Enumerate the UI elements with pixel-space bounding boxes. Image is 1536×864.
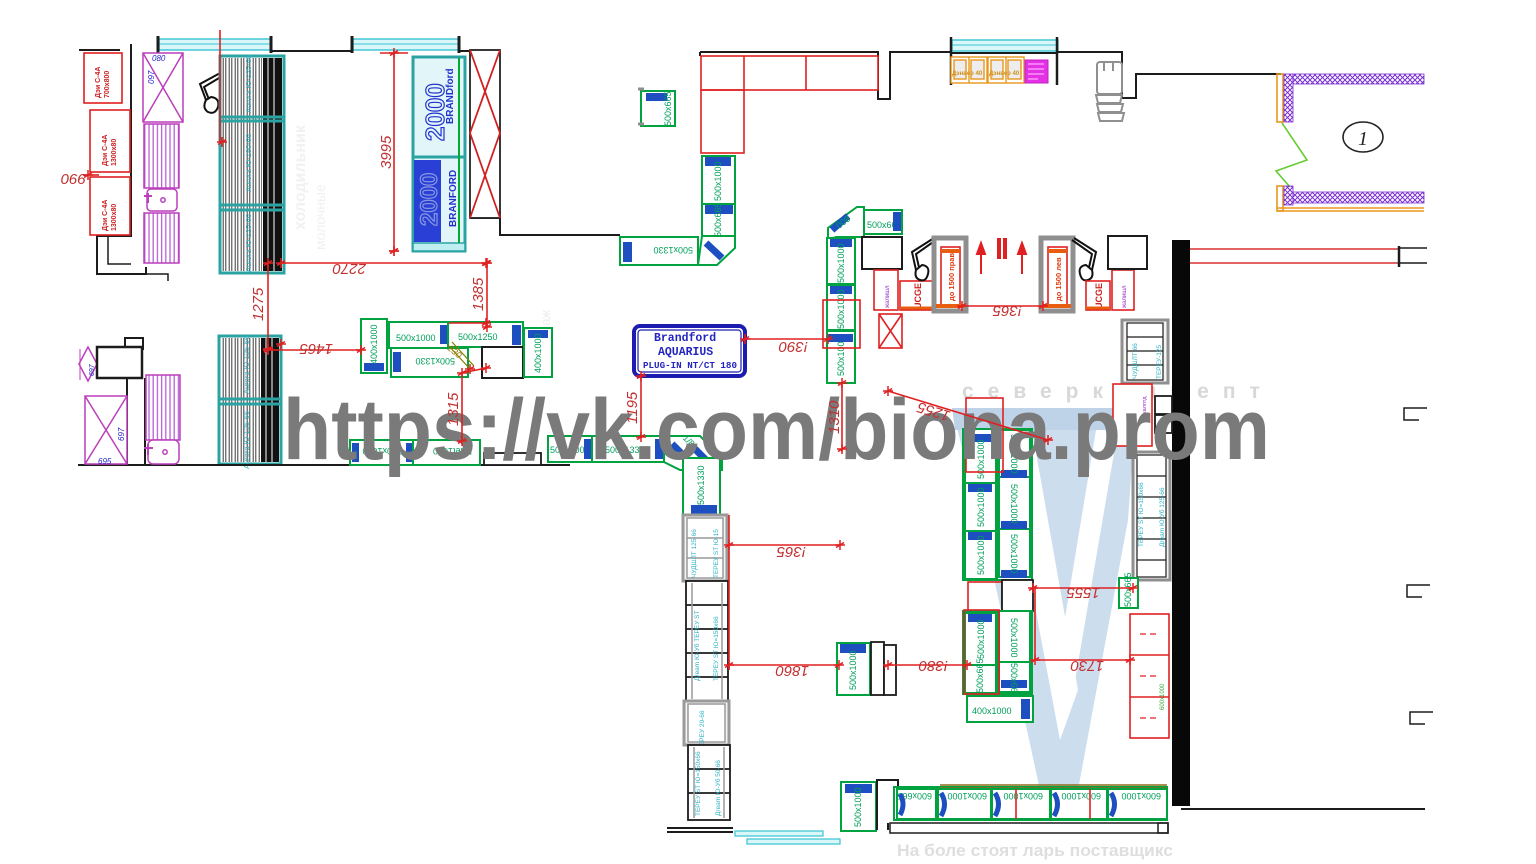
svg-text:600x1000: 600x1000 (1121, 791, 1161, 801)
svg-text:500x1330: 500x1330 (653, 245, 693, 255)
svg-text:Дэи С-4А: Дэи С-4А (95, 67, 102, 98)
svg-text:Дэнвер 40: Дэнвер 40 (952, 71, 983, 77)
svg-text:500x1000: 500x1000 (976, 619, 986, 659)
svg-text:ТЕРЕУ ST Ю-15: ТЕРЕУ ST Ю-15 (713, 529, 720, 578)
svg-text:3995: 3995 (378, 135, 395, 169)
svg-text:600x1000: 600x1000 (1160, 683, 1166, 710)
svg-text:Aurora Ю-125-66: Aurora Ю-125-66 (242, 336, 251, 394)
svg-text:500x1000: 500x1000 (1009, 618, 1019, 658)
svg-text:AQUARIUS: AQUARIUS (658, 346, 713, 359)
svg-text:холодильник: холодильник (292, 124, 309, 230)
svg-text:до 1500 прав: до 1500 прав (947, 253, 956, 301)
svg-text:500x1000: 500x1000 (853, 787, 863, 827)
svg-text:500x1000: 500x1000 (836, 289, 846, 329)
svg-text:080: 080 (152, 54, 166, 63)
svg-text:500x665: 500x665 (1009, 663, 1019, 698)
svg-text:На боле стоят ларь поставщикс: На боле стоят ларь поставщикс (897, 841, 1173, 860)
svg-text:500x1000: 500x1000 (836, 336, 846, 376)
svg-text:500x1000: 500x1000 (836, 243, 846, 283)
svg-text:!390: !390 (778, 338, 808, 355)
svg-text:ТЕРЕУ ST Ю=150x66: ТЕРЕУ ST Ю=150x66 (713, 616, 720, 681)
svg-text:500x1000: 500x1000 (1009, 484, 1019, 524)
svg-text:1385: 1385 (470, 277, 487, 311)
svg-text:Aurora Ю-125-66: Aurora Ю-125-66 (242, 411, 251, 469)
svg-text:500x665: 500x665 (975, 658, 985, 693)
svg-text:400x1000: 400x1000 (972, 706, 1012, 716)
svg-text:жалишл: жалишл (885, 285, 891, 308)
svg-text:Дream Ю-Уб 50-66: Дream Ю-Уб 50-66 (714, 760, 722, 816)
svg-text:1860: 1860 (775, 662, 809, 679)
svg-text:ТЕРЕУ 20-66: ТЕРЕУ 20-66 (699, 710, 706, 750)
svg-text:1195: 1195 (624, 391, 641, 424)
svg-text:600x1000: 600x1000 (947, 791, 987, 801)
svg-text:1300х80: 1300х80 (111, 139, 118, 166)
svg-text:600x1000: 600x1000 (1061, 791, 1101, 801)
svg-text:UCGE: UCGE (1094, 283, 1104, 309)
svg-text:Дэи С-4А: Дэи С-4А (102, 200, 109, 231)
svg-text:1275: 1275 (250, 287, 267, 321)
svg-text:молочные: молочные (312, 184, 328, 250)
svg-text:!380: !380 (918, 657, 948, 674)
svg-text:1465: 1465 (299, 340, 333, 357)
svg-text:BRANDford: BRANDford (445, 68, 456, 124)
svg-text:до 1500 лев: до 1500 лев (1054, 257, 1063, 301)
svg-text:697: 697 (117, 427, 126, 441)
svg-text:697: 697 (89, 363, 96, 376)
svg-text:Дэи С-4А: Дэи С-4А (102, 135, 109, 166)
svg-text:Brandford: Brandford (654, 332, 716, 345)
svg-text:1555: 1555 (1066, 584, 1100, 601)
svg-text:Aurora Ю-125-66: Aurora Ю-125-66 (244, 214, 253, 272)
svg-text:500x1000: 500x1000 (848, 650, 858, 690)
svg-text:700х800: 700х800 (104, 71, 111, 98)
svg-text:500x665: 500x665 (663, 91, 673, 126)
svg-text:1: 1 (1358, 128, 1368, 150)
svg-text:!365: !365 (776, 543, 806, 560)
svg-text:1315: 1315 (445, 392, 462, 426)
svg-text:!365: !365 (992, 302, 1022, 319)
svg-text:Дэнвер 40: Дэнвер 40 (989, 71, 1020, 77)
svg-text:500x1000: 500x1000 (396, 333, 436, 343)
svg-text:2270: 2270 (332, 260, 367, 277)
svg-text:400x1000: 400x1000 (533, 333, 543, 373)
svg-text:500x1000: 500x1000 (1009, 534, 1019, 574)
svg-text:097: 097 (147, 70, 156, 84)
svg-text:500x1250: 500x1250 (458, 332, 498, 342)
svg-text:жалишл: жалишл (1122, 285, 1128, 308)
svg-text:600x1000: 600x1000 (1003, 791, 1043, 801)
svg-text:500x1000: 500x1000 (976, 535, 986, 575)
svg-text:990: 990 (60, 170, 86, 187)
svg-text:Aurora Ю-125-66: Aurora Ю-125-66 (244, 55, 253, 113)
svg-text:500x1000: 500x1000 (976, 487, 986, 527)
svg-text:Дream Ю-Уб 125-66: Дream Ю-Уб 125-66 (1158, 487, 1166, 547)
svg-text:500x1000: 500x1000 (713, 161, 723, 201)
svg-text:500x665: 500x665 (713, 202, 723, 237)
svg-text:2000: 2000 (416, 173, 443, 226)
svg-text:695: 695 (98, 457, 112, 466)
svg-text:400x1000: 400x1000 (369, 324, 379, 364)
svg-text:ТЕРЕУ ST Ю=150x66: ТЕРЕУ ST Ю=150x66 (1138, 482, 1145, 547)
svg-text:https://vk.com/biona.prom: https://vk.com/biona.prom (283, 382, 1270, 478)
svg-text:BRANFORD: BRANFORD (448, 170, 459, 227)
svg-text:ТЕРЕУ ST Ю=150x66: ТЕРЕУ ST Ю=150x66 (695, 751, 702, 816)
svg-text:UCGE: UCGE (913, 283, 923, 309)
svg-text:ТЕРЕУ-125: ТЕРЕУ-125 (1156, 344, 1163, 379)
svg-text:ЧУДШЛТ 125-66: ЧУДШЛТ 125-66 (691, 529, 698, 578)
svg-text:1300х80: 1300х80 (111, 204, 118, 231)
svg-text:500x1330: 500x1330 (415, 356, 455, 366)
svg-text:1310: 1310 (826, 400, 843, 434)
svg-text:Aurora Ю-190-66: Aurora Ю-190-66 (244, 134, 253, 192)
svg-text:1730: 1730 (1070, 657, 1104, 674)
svg-text:ЧУДШЛТ 66: ЧУДШЛТ 66 (1132, 343, 1139, 379)
svg-text:PLUG-IN NT/CT 180: PLUG-IN NT/CT 180 (643, 360, 737, 371)
svg-text:Дream Ю-Уб ТЕРЕУ ST: Дream Ю-Уб ТЕРЕУ ST (693, 610, 701, 681)
